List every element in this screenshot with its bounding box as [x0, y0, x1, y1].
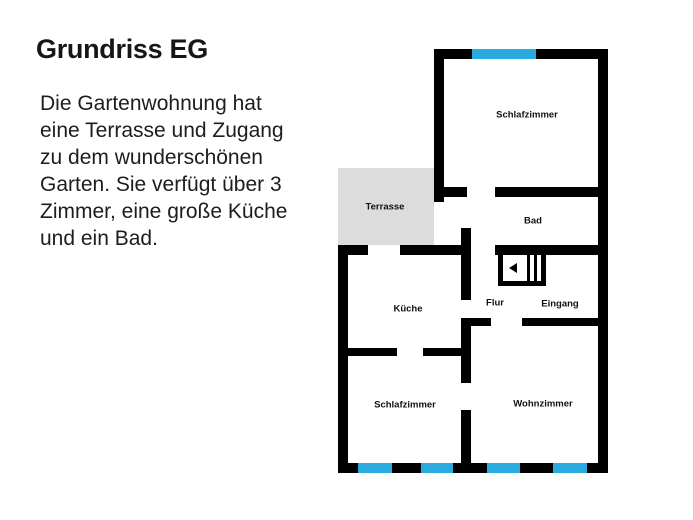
room-label-schlafzimmer-top: Schlafzimmer — [496, 110, 558, 121]
wall-segment — [423, 348, 471, 356]
wall-segment — [461, 410, 471, 473]
stair-tread — [534, 253, 537, 281]
room-label-kueche: Küche — [393, 304, 422, 315]
room-label-terrasse: Terrasse — [366, 202, 405, 213]
wall-segment — [338, 245, 348, 473]
room-label-bad: Bad — [524, 216, 542, 227]
room-label-schlafzimmer-bottom: Schlafzimmer — [374, 400, 436, 411]
wall-segment — [598, 49, 608, 473]
wall-segment — [461, 318, 491, 326]
window-marker — [487, 463, 520, 473]
page: Grundriss EG Die Gartenwohnung hat eine … — [0, 0, 693, 520]
window-marker — [472, 49, 536, 59]
wall-segment — [434, 49, 444, 202]
wall-segment — [434, 187, 467, 197]
room-label-flur: Flur — [486, 298, 504, 309]
wall-segment — [495, 187, 608, 197]
window-marker — [358, 463, 392, 473]
stair-tread — [527, 253, 530, 281]
window-marker — [553, 463, 587, 473]
window-marker — [421, 463, 453, 473]
wall-segment — [461, 228, 471, 300]
wall-segment — [338, 348, 397, 356]
stairs-direction-arrow-icon — [509, 263, 517, 273]
wall-segment — [338, 245, 368, 255]
room-label-eingang: Eingang — [541, 299, 578, 310]
floor-plan: Schlafzimmer Bad Terrasse Küche Flur Ein… — [0, 0, 693, 520]
staircase — [498, 253, 546, 286]
wall-segment — [522, 318, 608, 326]
room-label-wohnzimmer: Wohnzimmer — [513, 399, 572, 410]
